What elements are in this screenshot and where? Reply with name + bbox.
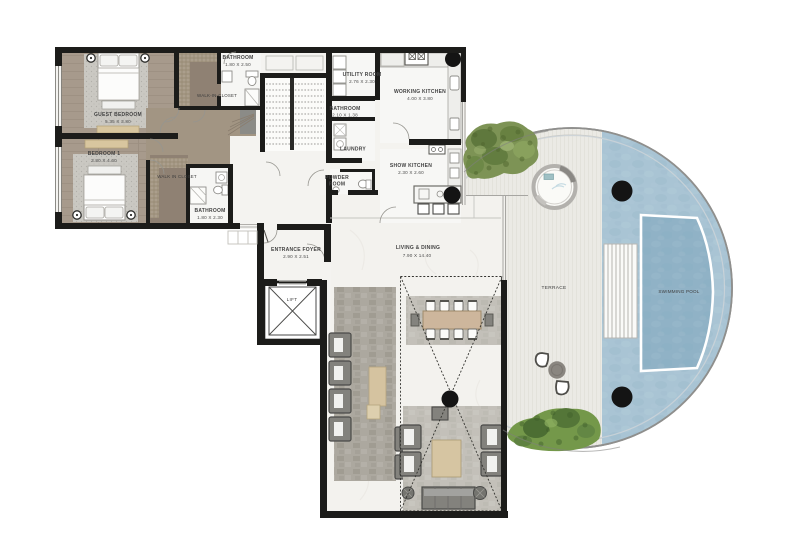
svg-text:1.80 X 2.30: 1.80 X 2.30 — [197, 215, 223, 220]
svg-text:BATHROOM: BATHROOM — [222, 55, 253, 61]
svg-text:UTILITY ROOM: UTILITY ROOM — [343, 72, 382, 78]
svg-text:3.80 X 4.60: 3.80 X 4.60 — [91, 158, 117, 163]
svg-text:2.30 X 2.60: 2.30 X 2.60 — [398, 170, 424, 175]
svg-text:1.80 X 2.50: 1.80 X 2.50 — [225, 62, 251, 67]
svg-text:ENTRANCE FOYER: ENTRANCE FOYER — [271, 247, 321, 253]
svg-text:BATHROOM: BATHROOM — [329, 106, 360, 112]
svg-text:LAUNDRY: LAUNDRY — [340, 147, 366, 153]
svg-text:WALK IN CLOSET: WALK IN CLOSET — [157, 174, 197, 179]
svg-text:ROOM: ROOM — [329, 182, 346, 188]
svg-text:WORKING KITCHEN: WORKING KITCHEN — [394, 89, 446, 95]
svg-text:SWIMMING POOL: SWIMMING POOL — [658, 289, 699, 294]
svg-text:WALK-IN-CLOSET: WALK-IN-CLOSET — [197, 93, 237, 98]
svg-text:POWDER: POWDER — [325, 175, 349, 181]
svg-text:7.90 X 14.40: 7.90 X 14.40 — [403, 253, 432, 258]
svg-text:2.10 X 1.38: 2.10 X 1.38 — [332, 113, 358, 118]
svg-text:2.90 X 2.51: 2.90 X 2.51 — [283, 254, 309, 259]
svg-text:LIFT: LIFT — [287, 297, 298, 302]
svg-text:4.00 X 3.80: 4.00 X 3.80 — [407, 96, 433, 101]
svg-text:TERRACE: TERRACE — [541, 285, 566, 291]
svg-text:BATHROOM: BATHROOM — [194, 208, 225, 214]
svg-text:GUEST BEDROOM: GUEST BEDROOM — [94, 112, 142, 118]
svg-text:LIVING & DINING: LIVING & DINING — [396, 245, 440, 251]
svg-text:2.76 X 2.30: 2.76 X 2.30 — [349, 79, 375, 84]
svg-text:BEDROOM 1: BEDROOM 1 — [88, 151, 121, 157]
svg-text:SHOW KITCHEN: SHOW KITCHEN — [390, 163, 432, 169]
svg-text:5.35 X 3.80: 5.35 X 3.80 — [105, 119, 131, 124]
